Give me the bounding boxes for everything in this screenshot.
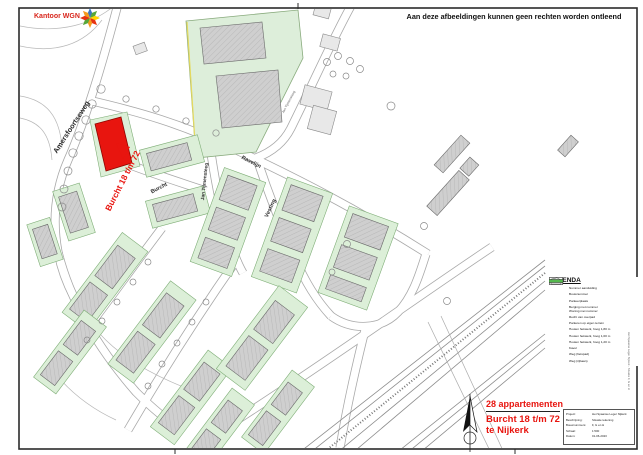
legend-item-label: Berging met nummerWoning met nummer — [569, 306, 598, 314]
annotation-line2: Burcht 18 t/m 72 — [486, 414, 563, 425]
legend-items: Nummer aanduidingxxxBouwnummerParkeerpla… — [549, 287, 639, 363]
pinwheel-logo-icon — [78, 6, 102, 30]
legend-item-label: Parkeerplaats — [569, 300, 588, 304]
annotation-line1: 28 appartementen — [486, 399, 563, 409]
disclaimer-text: Aan deze afbeeldingen kunnen geen rechte… — [396, 12, 632, 21]
buildings-east — [427, 135, 579, 215]
legend-item-label: Nummer aanduiding — [569, 287, 597, 291]
legend-item: Nummer aanduiding — [549, 287, 639, 291]
legend-item: Recht van overpad — [549, 316, 639, 320]
site-plan-sheet: Kantoor WGN Aan deze afbeeldingen kunnen… — [0, 0, 643, 455]
legend-item: Parkeerplaats — [549, 300, 639, 304]
annotation-divider — [486, 411, 560, 412]
legend-item-label: Kavel — [569, 347, 577, 351]
titleblock-label: Datum: — [566, 434, 592, 440]
drawing-frame — [19, 3, 637, 454]
legend-item-label: Bouwnummer — [569, 293, 588, 297]
legend-item-label: Recht van overpad — [569, 316, 595, 320]
legend-item-label: Houten hekwerk, hoog 1,20 m — [569, 341, 610, 345]
annotation-line3: te Nijkerk — [486, 425, 563, 436]
project-annotation: 28 appartementen Burcht 18 t/m 72 te Nij… — [486, 399, 563, 437]
legend-item-label: Houten hekwerk, hoog 1,80 m — [569, 328, 610, 332]
legend-item: Weg (rijbaan) — [549, 360, 639, 364]
titleblock-value: 01-06-2023 — [592, 434, 607, 440]
legend-item-label2: Woning met nummer — [569, 310, 598, 314]
site-map — [0, 0, 643, 455]
legend-item: Weg (fietspad) — [549, 353, 639, 357]
legend-item-label: Weg (rijbaan) — [569, 360, 588, 364]
legend-item: Houten hekwerk, hoog 1,80 m — [549, 328, 639, 332]
titleblock-row: Datum:01-06-2023 — [566, 434, 634, 440]
legend-item: Parkeren op eigen terrein — [549, 322, 639, 326]
logo-text: Kantoor WGN — [34, 13, 80, 20]
title-block: Project:Het Spaanse Leger NijkerkBeschri… — [563, 409, 635, 445]
legend: LEGENDA Nummer aanduidingxxxBouwnummerPa… — [549, 277, 639, 366]
legend-item: 12Berging met nummerWoning met nummer — [549, 306, 639, 314]
frame-side-caption: Het Spaanse Leger Nijkerk - Situatie F, … — [627, 332, 631, 390]
north-arrow-icon — [460, 392, 480, 454]
legend-item: Kavel — [549, 347, 639, 351]
legend-item: Houten hekwerk, hoog 1,20 m — [549, 341, 639, 345]
legend-item-label: Houten hekwerk, hoog 1,00 m — [569, 335, 610, 339]
legend-item-label: Weg (fietspad) — [569, 353, 589, 357]
legend-item-label: Parkeren op eigen terrein — [569, 322, 604, 326]
legend-item: Houten hekwerk, hoog 1,00 m — [549, 335, 639, 339]
legend-item: xxxBouwnummer — [549, 293, 639, 297]
